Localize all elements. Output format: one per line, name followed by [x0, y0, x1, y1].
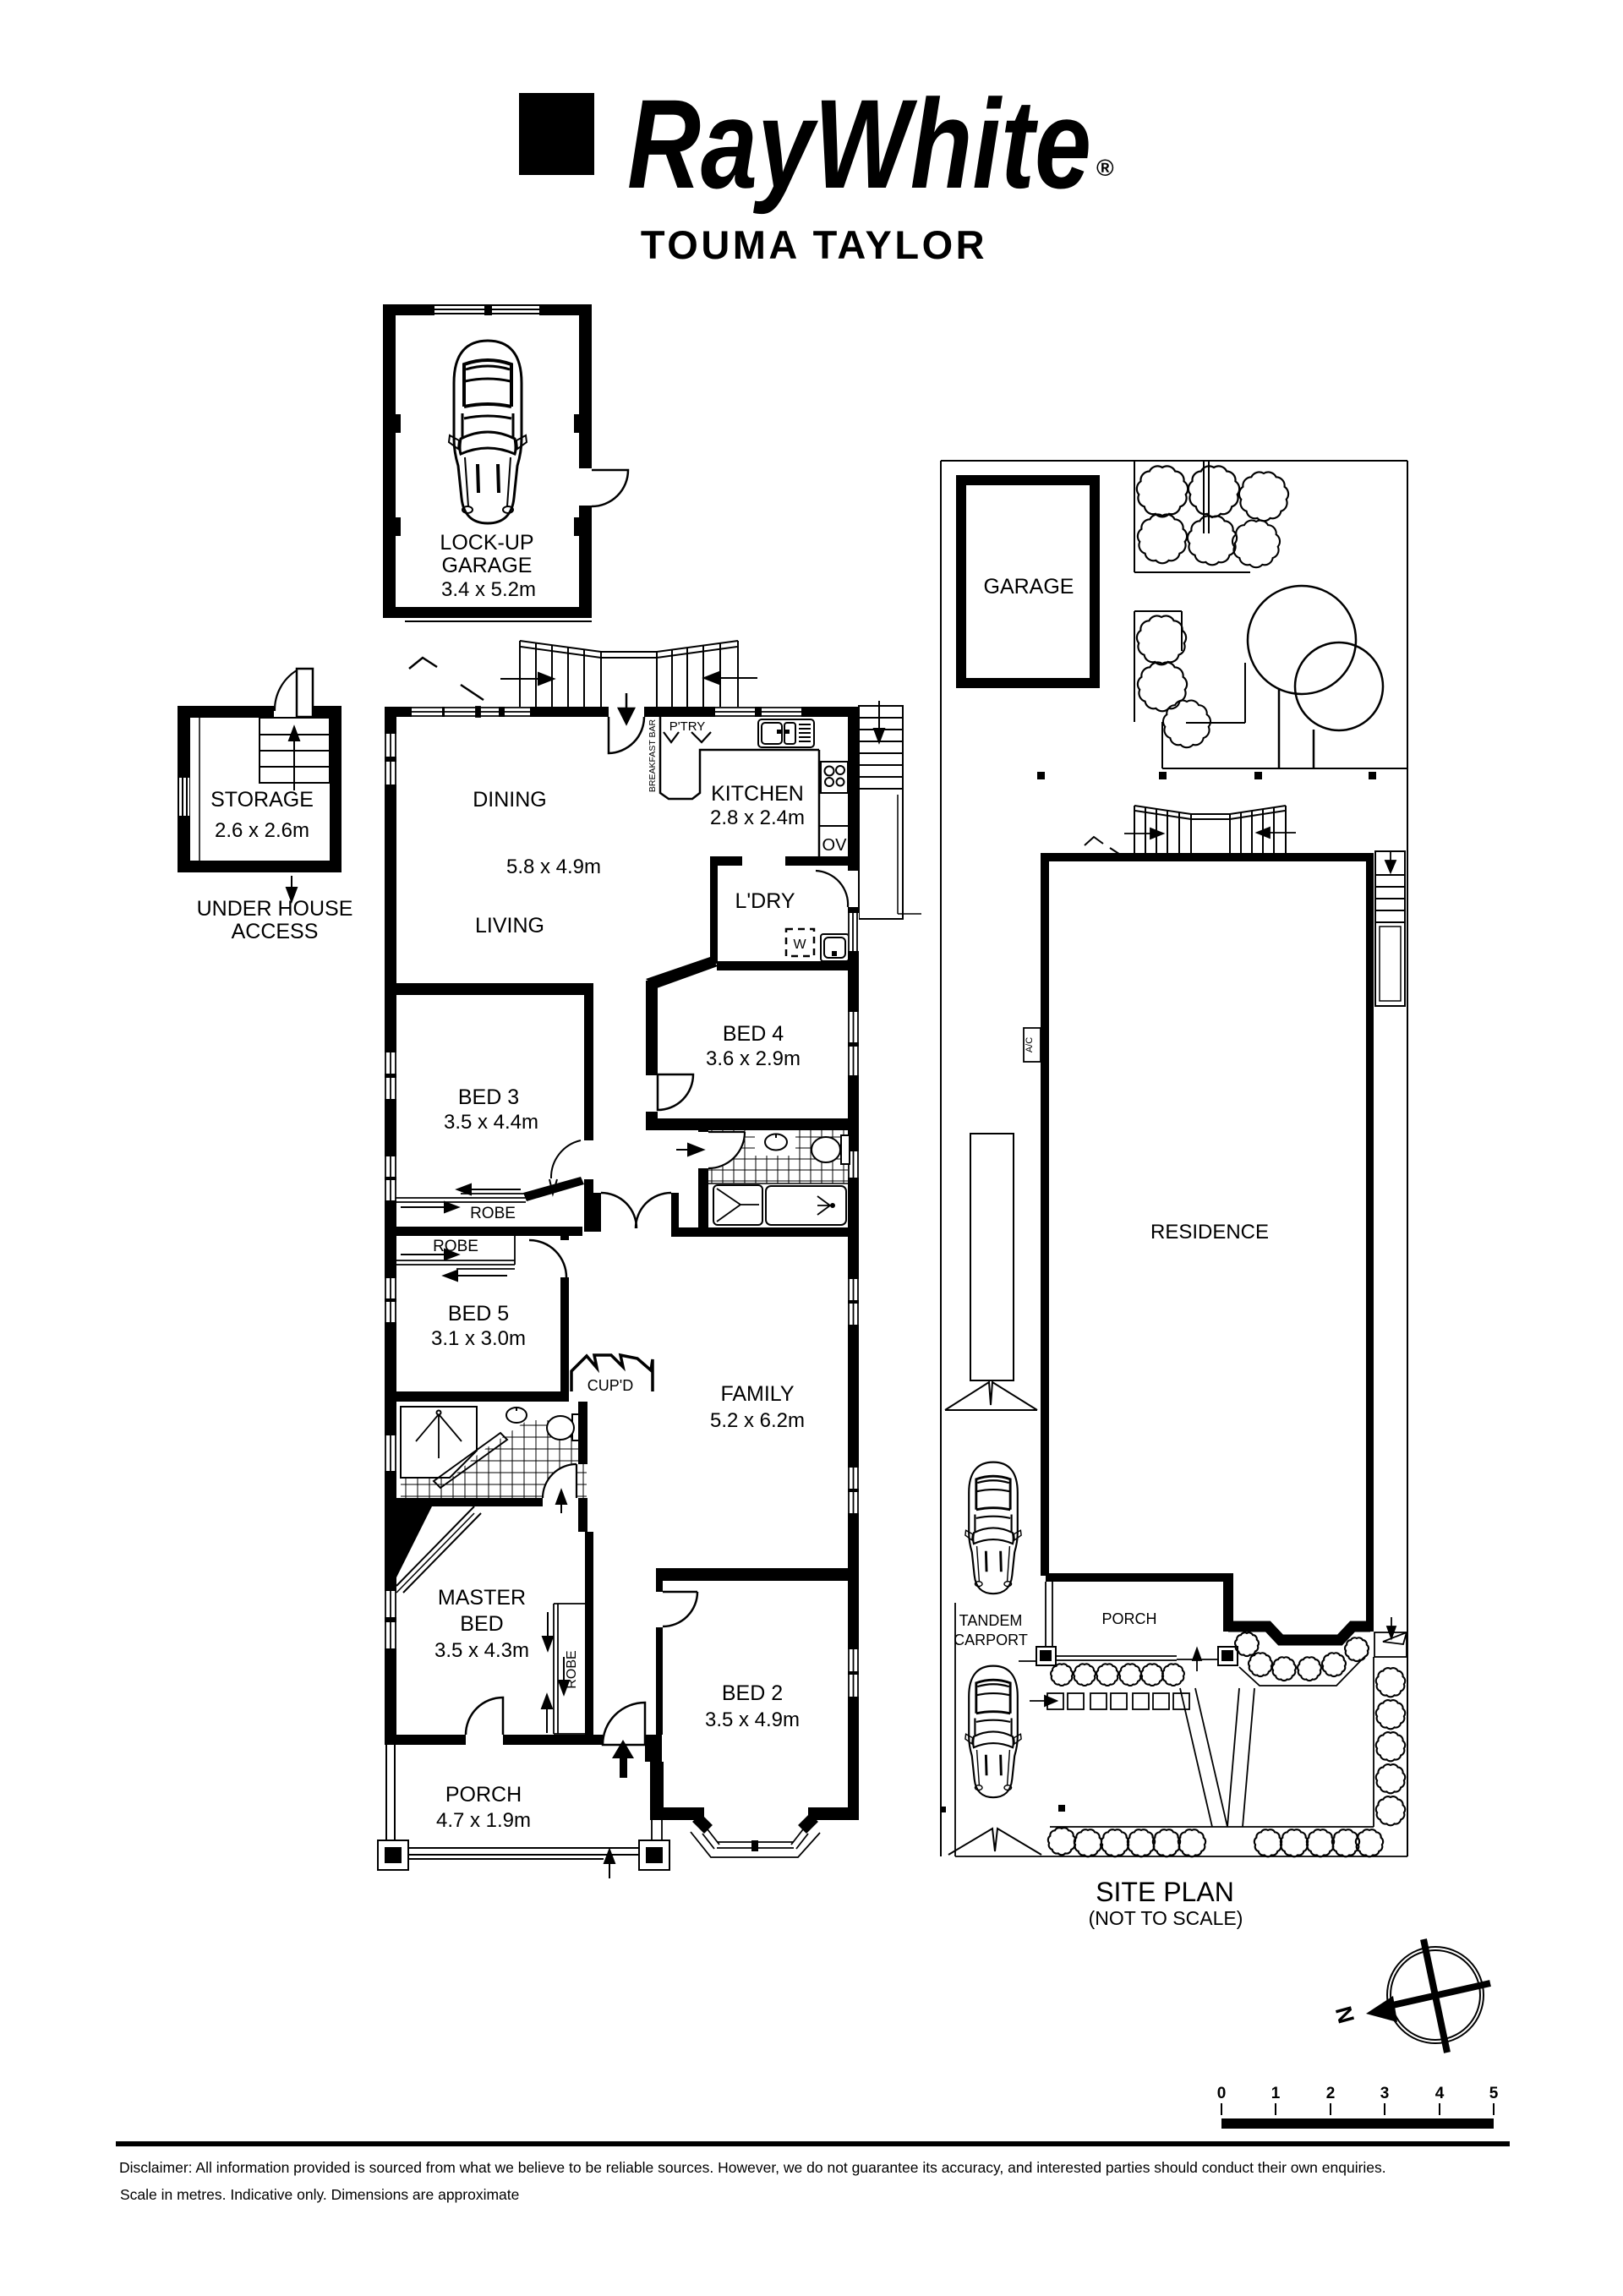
svg-text:5.8 x 4.9m: 5.8 x 4.9m	[506, 856, 601, 878]
svg-text:2: 2	[1326, 2085, 1336, 2102]
svg-text:A/C: A/C	[1025, 1037, 1035, 1052]
svg-text:BED 5: BED 5	[448, 1302, 509, 1326]
svg-text:W: W	[793, 938, 806, 952]
svg-text:MASTER: MASTER	[438, 1586, 526, 1610]
svg-text:BED 3: BED 3	[458, 1085, 519, 1109]
svg-text:BED 4: BED 4	[723, 1022, 784, 1046]
svg-text:4.7 x 1.9m: 4.7 x 1.9m	[436, 1809, 531, 1832]
svg-text:RESIDENCE: RESIDENCE	[1150, 1221, 1269, 1244]
svg-text:L'DRY: L'DRY	[735, 889, 795, 913]
svg-text:LOCK-UP: LOCK-UP	[440, 531, 533, 555]
svg-text:BREAKFAST BAR: BREAKFAST BAR	[648, 719, 658, 793]
svg-text:ROBE: ROBE	[470, 1205, 516, 1222]
svg-text:3.6 x 2.9m: 3.6 x 2.9m	[706, 1047, 801, 1070]
svg-text:3.4 x 5.2m: 3.4 x 5.2m	[441, 578, 536, 601]
svg-text:2.6 x 2.6m: 2.6 x 2.6m	[215, 819, 309, 842]
svg-text:2.8 x 2.4m: 2.8 x 2.4m	[710, 806, 805, 829]
svg-text:5: 5	[1489, 2085, 1499, 2102]
svg-text:CARPORT: CARPORT	[954, 1632, 1028, 1648]
svg-text:PORCH: PORCH	[445, 1783, 522, 1807]
svg-text:GARAGE: GARAGE	[442, 554, 533, 577]
svg-text:1: 1	[1271, 2085, 1281, 2102]
svg-text:CUP'D: CUP'D	[587, 1377, 633, 1394]
svg-text:3.5 x 4.9m: 3.5 x 4.9m	[705, 1708, 800, 1731]
svg-text:Scale in metres. Indicative on: Scale in metres. Indicative only. Dimens…	[120, 2186, 519, 2203]
svg-text:TANDEM: TANDEM	[959, 1612, 1023, 1629]
svg-text:Disclaimer: All information pr: Disclaimer: All information provided is …	[119, 2159, 1386, 2176]
svg-text:UNDER HOUSE: UNDER HOUSE	[197, 897, 353, 921]
svg-text:BED: BED	[460, 1612, 503, 1636]
svg-text:®: ®	[1096, 155, 1114, 181]
svg-text:PORCH: PORCH	[1101, 1610, 1156, 1627]
svg-text:3.5 x 4.3m: 3.5 x 4.3m	[434, 1639, 529, 1662]
svg-text:ROBE: ROBE	[565, 1650, 579, 1688]
svg-text:P'TRY: P'TRY	[669, 719, 706, 734]
svg-text:3: 3	[1380, 2085, 1390, 2102]
svg-text:5.2 x 6.2m: 5.2 x 6.2m	[710, 1409, 805, 1432]
svg-text:GARAGE: GARAGE	[984, 575, 1074, 599]
svg-text:RayWhite: RayWhite	[627, 73, 1091, 215]
svg-text:FAMILY: FAMILY	[720, 1382, 794, 1406]
svg-text:LIVING: LIVING	[475, 914, 544, 938]
svg-text:DINING: DINING	[473, 788, 547, 812]
svg-text:3.5 x 4.4m: 3.5 x 4.4m	[444, 1111, 538, 1134]
svg-text:KITCHEN: KITCHEN	[711, 782, 804, 806]
svg-text:0: 0	[1217, 2085, 1227, 2102]
svg-text:STORAGE: STORAGE	[210, 788, 314, 812]
svg-text:4: 4	[1435, 2085, 1445, 2102]
svg-text:ACCESS: ACCESS	[232, 920, 319, 943]
svg-text:TOUMA TAYLOR: TOUMA TAYLOR	[641, 222, 987, 267]
svg-text:(NOT TO SCALE): (NOT TO SCALE)	[1089, 1907, 1243, 1929]
svg-text:SITE PLAN: SITE PLAN	[1096, 1877, 1234, 1907]
svg-text:3.1 x 3.0m: 3.1 x 3.0m	[431, 1327, 526, 1350]
svg-text:BED 2: BED 2	[722, 1681, 783, 1705]
svg-text:OV: OV	[822, 836, 848, 855]
